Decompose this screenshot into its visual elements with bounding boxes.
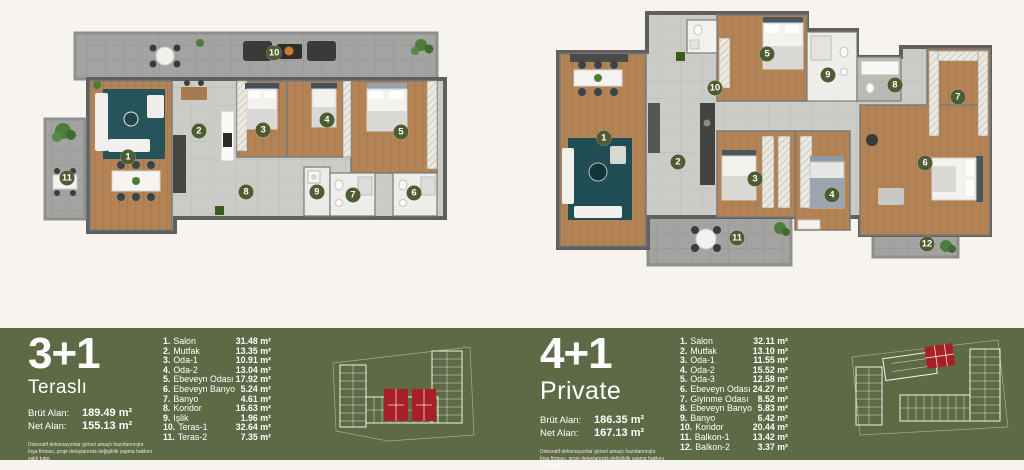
room-name: Ebeveyn Banyo: [173, 385, 240, 395]
balcony-1: [648, 215, 791, 265]
disclaimer-text: Dekoratif dekorasyonlar görsel amaçlı ha…: [540, 449, 666, 470]
area-summary: Brüt Alan: 186.35 m² Net Alan: 167.13 m²: [540, 414, 672, 440]
unit-type-title: 3+1: [28, 335, 160, 374]
room-number-badge: 3: [748, 172, 763, 187]
gross-area-value: 186.35 m²: [594, 414, 644, 427]
unit-info: 3+1 Teraslı Brüt Alan: 189.49 m² Net Ala…: [28, 335, 160, 463]
terrace-2: [45, 119, 85, 219]
gross-area-row: Brüt Alan: 189.49 m²: [28, 407, 160, 420]
balcony-2: [873, 235, 958, 257]
net-area-label: Net Alan:: [28, 420, 82, 433]
unit-subtitle: Teraslı: [28, 377, 160, 399]
room-area: 3.37 m²: [758, 443, 788, 453]
unit-panel-4plus1: 4+1 Private Brüt Alan: 186.35 m² Net Ala…: [512, 328, 1024, 460]
room-name: Giyinme Odası: [690, 395, 757, 405]
room-name: Koridor: [695, 423, 753, 433]
room-name: Mutfak: [173, 347, 235, 357]
unit-type-title: 4+1: [540, 335, 672, 374]
floor-plan-3plus1-drawing: [15, 15, 455, 235]
site-plan-4plus1: [848, 335, 1013, 458]
highlighted-unit: [924, 343, 955, 369]
room-number-badge: 2: [671, 155, 686, 170]
room-number-badge: 1: [121, 149, 136, 164]
gross-area-row: Brüt Alan: 186.35 m²: [540, 414, 672, 427]
room-name: Mutfak: [690, 347, 752, 357]
room-number-badge: 12: [919, 237, 934, 252]
floor-plan-4plus1-drawing: [548, 8, 998, 270]
room-number-badge: 9: [820, 68, 835, 83]
room-name: Banyo: [173, 395, 240, 405]
room-name: Teras-1: [178, 423, 236, 433]
room-number-badge: 7: [345, 187, 360, 202]
room-number-badge: 6: [918, 156, 933, 171]
site-plan-drawing: [848, 335, 1013, 453]
room-number: 12.: [680, 443, 692, 453]
room-name: Oda-1: [173, 356, 235, 366]
gross-area-value: 189.49 m²: [82, 407, 132, 420]
room-name: Salon: [690, 337, 753, 347]
room-name: Oda-1: [690, 356, 753, 366]
room-number-badge: 10: [267, 46, 282, 61]
room-number-badge: 11: [730, 231, 745, 246]
room-name: İşlik: [173, 414, 240, 424]
room-row: 11.Teras-27.35 m²: [163, 433, 271, 443]
unit-subtitle: Private: [540, 377, 672, 406]
room-list: 1.Salon31.48 m²2.Mutfak13.35 m²3.Oda-110…: [163, 337, 271, 443]
room-number-badge: 1: [596, 130, 611, 145]
room-name: Ebeveyn Odası: [690, 385, 752, 395]
gross-area-label: Brüt Alan:: [28, 407, 82, 420]
floor-plan-3plus1: 1234567891011: [15, 15, 455, 235]
room-number-badge: 7: [950, 90, 965, 105]
room-name: Oda-2: [173, 366, 235, 376]
room-name: Oda-3: [690, 375, 752, 385]
room-number-badge: 2: [191, 123, 206, 138]
floor-plan-4plus1: 123456789101112: [548, 8, 998, 270]
room-number-badge: 5: [760, 47, 775, 62]
room-name: Ebeveyn Odası: [173, 375, 235, 385]
room-name: Salon: [173, 337, 235, 347]
room-name: Ebeveyn Banyo: [690, 404, 757, 414]
room-number-badge: 8: [887, 78, 902, 93]
brochure-page: 1234567891011: [0, 0, 1024, 460]
room-number-badge: 5: [393, 125, 408, 140]
room-number: 11.: [163, 433, 175, 443]
room-number-badge: 3: [256, 123, 271, 138]
floor-plans-section: 1234567891011: [0, 0, 1024, 328]
unit-info: 4+1 Private Brüt Alan: 186.35 m² Net Ala…: [540, 335, 672, 470]
room-name: Balkon-2: [695, 443, 757, 453]
net-area-row: Net Alan: 167.13 m²: [540, 427, 672, 440]
net-area-value: 167.13 m²: [594, 427, 644, 440]
info-band: 3+1 Teraslı Brüt Alan: 189.49 m² Net Ala…: [0, 328, 1024, 460]
room-name: Oda-2: [690, 366, 752, 376]
room-number-badge: 11: [59, 171, 74, 186]
room-row: 12.Balkon-23.37 m²: [680, 443, 788, 453]
site-plan-3plus1: [328, 335, 478, 458]
room-name: Koridor: [173, 404, 235, 414]
room-number-badge: 4: [824, 188, 839, 203]
terrace-1: [75, 33, 437, 79]
room-number-badge: 4: [319, 112, 334, 127]
room-name: Banyo: [690, 414, 757, 424]
room-list: 1.Salon32.11 m²2.Mutfak13.10 m²3.Oda-111…: [680, 337, 788, 452]
area-summary: Brüt Alan: 189.49 m² Net Alan: 155.13 m²: [28, 407, 160, 433]
unit-panel-3plus1: 3+1 Teraslı Brüt Alan: 189.49 m² Net Ala…: [0, 328, 512, 460]
room-area: 7.35 m²: [241, 433, 271, 443]
site-plan-drawing: [328, 335, 478, 453]
room-number-badge: 8: [239, 185, 254, 200]
room-name: Teras-2: [178, 433, 241, 443]
highlighted-units: [384, 389, 436, 421]
disclaimer-text: Dekoratif dekorasyonlar görsel amaçlı ha…: [28, 442, 154, 464]
room-name: Balkon-1: [695, 433, 753, 443]
gross-area-label: Brüt Alan:: [540, 414, 594, 427]
net-area-label: Net Alan:: [540, 427, 594, 440]
room-number-badge: 6: [407, 185, 422, 200]
net-area-row: Net Alan: 155.13 m²: [28, 420, 160, 433]
room-number-badge: 10: [707, 80, 722, 95]
net-area-value: 155.13 m²: [82, 420, 132, 433]
room-number-badge: 9: [309, 185, 324, 200]
